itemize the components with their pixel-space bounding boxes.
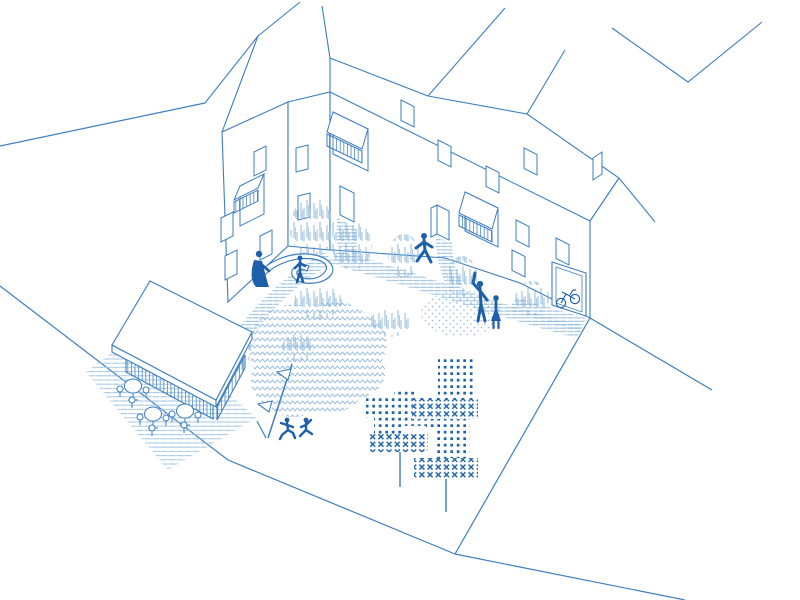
street-line-upper-left <box>0 103 205 146</box>
window <box>296 145 308 172</box>
tree-canopy-x-band <box>370 434 428 452</box>
gable-window <box>593 152 602 180</box>
gable-edge <box>590 178 619 221</box>
entrance-door <box>340 186 354 222</box>
children-running <box>280 418 312 439</box>
courtyard-illustration <box>0 0 800 600</box>
roof-valley-corner <box>322 6 330 92</box>
tree-canopy-x-band <box>412 398 478 419</box>
roof-ridge-left <box>205 2 300 103</box>
gravel-area <box>421 291 502 337</box>
street-line-corner-to-junction <box>455 318 590 554</box>
grass-patch <box>447 256 477 296</box>
grass-patch <box>370 307 410 337</box>
kiosk-group <box>86 281 256 470</box>
street-line-right <box>590 318 712 390</box>
grass-patch <box>290 198 334 258</box>
grass-patch <box>332 222 372 270</box>
neighbour-roof-v <box>612 22 762 82</box>
roof-valley-1 <box>330 8 505 96</box>
grass-patch <box>294 285 342 319</box>
grass-patch <box>282 334 314 362</box>
street-line-lower-right <box>455 554 685 600</box>
child-running <box>280 418 295 439</box>
roof-valley-2 <box>428 50 565 114</box>
pennant-flag <box>258 401 272 412</box>
child-running <box>300 418 312 436</box>
entrance-door <box>437 205 449 240</box>
illustration-canvas <box>0 0 800 600</box>
window <box>401 100 414 127</box>
grass-patch <box>388 234 420 278</box>
tree-canopy-x-band <box>414 458 478 479</box>
grass-patch <box>515 281 549 315</box>
pole-support <box>257 421 266 438</box>
window <box>524 148 537 175</box>
